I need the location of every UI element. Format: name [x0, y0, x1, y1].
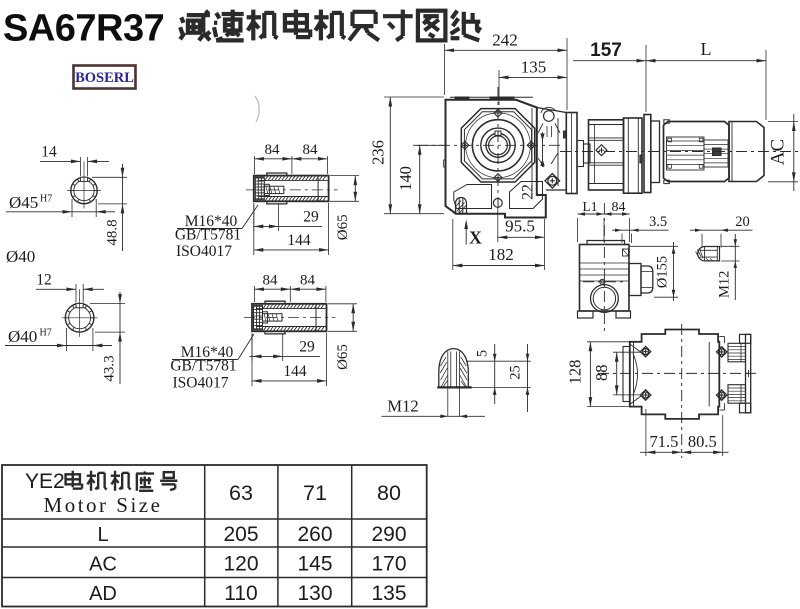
svg-text:3.5: 3.5: [649, 214, 667, 230]
svg-text:48.8: 48.8: [105, 219, 121, 245]
svg-text:135: 135: [521, 58, 547, 77]
svg-text:80: 80: [377, 481, 401, 505]
svg-text:120: 120: [223, 553, 258, 576]
svg-text:12: 12: [36, 271, 52, 288]
svg-text:145: 145: [297, 553, 332, 576]
svg-text:135: 135: [371, 582, 406, 605]
svg-text:Ø65: Ø65: [335, 214, 351, 240]
svg-text:GB/T5781: GB/T5781: [170, 358, 236, 375]
svg-text:29: 29: [303, 209, 319, 226]
svg-text:Motor Size: Motor Size: [44, 493, 163, 517]
svg-text:157: 157: [590, 40, 622, 61]
svg-text:5: 5: [475, 350, 491, 357]
svg-text:144: 144: [283, 363, 307, 380]
svg-text:Ø155: Ø155: [655, 256, 671, 288]
svg-text:260: 260: [297, 523, 332, 546]
svg-text:22: 22: [520, 184, 537, 200]
svg-text:84: 84: [303, 142, 319, 158]
svg-text:20: 20: [735, 214, 750, 230]
svg-text:242: 242: [492, 31, 518, 50]
svg-text:25: 25: [508, 365, 524, 380]
svg-text:29: 29: [299, 339, 315, 356]
svg-text:144: 144: [287, 232, 311, 249]
svg-text:L: L: [701, 39, 712, 59]
svg-text:80.5: 80.5: [688, 432, 717, 451]
svg-text:AD: AD: [89, 583, 117, 605]
svg-text:H7: H7: [40, 194, 52, 205]
svg-text:14: 14: [41, 144, 57, 161]
svg-text:AC: AC: [89, 554, 117, 576]
svg-text:63: 63: [229, 481, 253, 505]
svg-text:AC: AC: [768, 139, 789, 165]
svg-text:71.5: 71.5: [649, 432, 678, 451]
svg-text:Ø40: Ø40: [8, 327, 37, 346]
svg-text:130: 130: [297, 582, 332, 605]
svg-text:84: 84: [612, 200, 626, 215]
svg-text:Ø40: Ø40: [6, 247, 35, 266]
svg-text:Ø65: Ø65: [335, 344, 351, 370]
svg-text:M12: M12: [387, 397, 418, 416]
svg-text:YE2: YE2: [25, 470, 65, 493]
svg-text:170: 170: [371, 553, 406, 576]
svg-text:H7: H7: [40, 328, 52, 339]
svg-text:182: 182: [488, 245, 514, 264]
svg-text:71: 71: [303, 481, 327, 505]
svg-text:88: 88: [592, 364, 611, 381]
svg-text:290: 290: [371, 523, 406, 546]
svg-text:L: L: [97, 524, 108, 546]
svg-text:110: 110: [224, 582, 257, 605]
svg-text:43.3: 43.3: [102, 355, 118, 381]
svg-text:ISO4017: ISO4017: [173, 375, 229, 392]
svg-text:ISO4017: ISO4017: [176, 243, 232, 260]
svg-text:236: 236: [369, 140, 388, 165]
svg-text:X: X: [469, 228, 482, 248]
svg-text:Ø45: Ø45: [9, 193, 38, 212]
svg-text:128: 128: [566, 360, 585, 385]
svg-text:BOSERL: BOSERL: [75, 70, 134, 86]
svg-text:GB/T5781: GB/T5781: [175, 227, 241, 244]
svg-text:L1: L1: [583, 199, 598, 214]
svg-text:84: 84: [265, 142, 281, 158]
svg-text:140: 140: [396, 166, 415, 191]
svg-text:M12: M12: [717, 271, 733, 298]
svg-text:205: 205: [223, 523, 258, 546]
svg-text:84: 84: [300, 272, 316, 288]
svg-text:SA67R37: SA67R37: [3, 8, 164, 50]
svg-text:84: 84: [263, 272, 279, 288]
svg-text:95.5: 95.5: [505, 217, 535, 236]
